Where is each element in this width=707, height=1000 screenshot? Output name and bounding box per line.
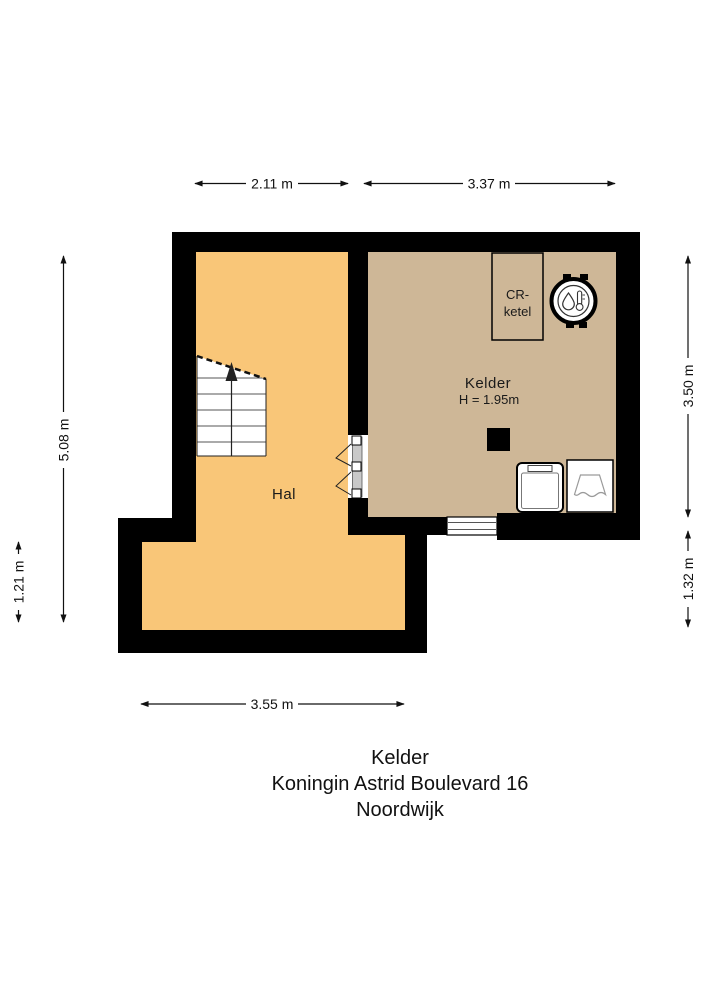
cr-ketel-label-line1: CR- <box>506 287 529 302</box>
wall-left-upper <box>172 252 196 518</box>
title-room: Kelder <box>100 745 700 771</box>
dimension-label: 3.50 m <box>680 365 696 408</box>
dimension-label: 2.11 m <box>251 176 293 192</box>
dimension-label: 1.32 m <box>680 558 696 601</box>
dimension-label: 3.55 m <box>251 696 294 712</box>
column-marker <box>487 428 510 451</box>
washing-machine-icon <box>517 463 563 512</box>
dimension-top-right: 3.37 m <box>364 176 615 192</box>
wall-protrusion-right <box>405 533 427 653</box>
dimension-left-lower: 1.21 m <box>11 542 27 622</box>
dimension-label: 3.37 m <box>468 176 511 192</box>
dimension-label: 5.08 m <box>56 419 72 462</box>
window-icon <box>447 517 497 535</box>
kelder-label: Kelder <box>465 375 511 392</box>
wall-divider-upper <box>348 252 368 435</box>
dimension-left-outer: 5.08 m <box>56 256 72 622</box>
dimension-top-left: 2.11 m <box>195 176 348 192</box>
dimension-right-upper: 3.50 m <box>680 256 696 517</box>
title-address: Koningin Astrid Boulevard 16 <box>100 771 700 797</box>
hal-label: Hal <box>272 486 296 503</box>
hal-floor-lower <box>140 533 407 633</box>
sink-icon <box>567 460 613 512</box>
kelder-height-label: H = 1.95m <box>459 392 519 407</box>
wall-top <box>172 232 640 252</box>
wall-kelder-bottom-thin <box>348 517 447 535</box>
dimension-bottom: 3.55 m <box>141 696 404 712</box>
title-city: Noordwijk <box>100 797 700 823</box>
floor-plan: CR- ketel Hal Kelder H = 1.95m 2.11 m <box>0 0 707 1000</box>
wall-right <box>616 252 640 540</box>
dimension-right-lower: 1.32 m <box>680 531 696 627</box>
cr-ketel-label-line2: ketel <box>504 304 532 319</box>
dimension-label: 1.21 m <box>11 561 27 604</box>
title-block: Kelder Koningin Astrid Boulevard 16 Noor… <box>100 745 700 823</box>
wall-protrusion-bottom <box>118 630 427 653</box>
